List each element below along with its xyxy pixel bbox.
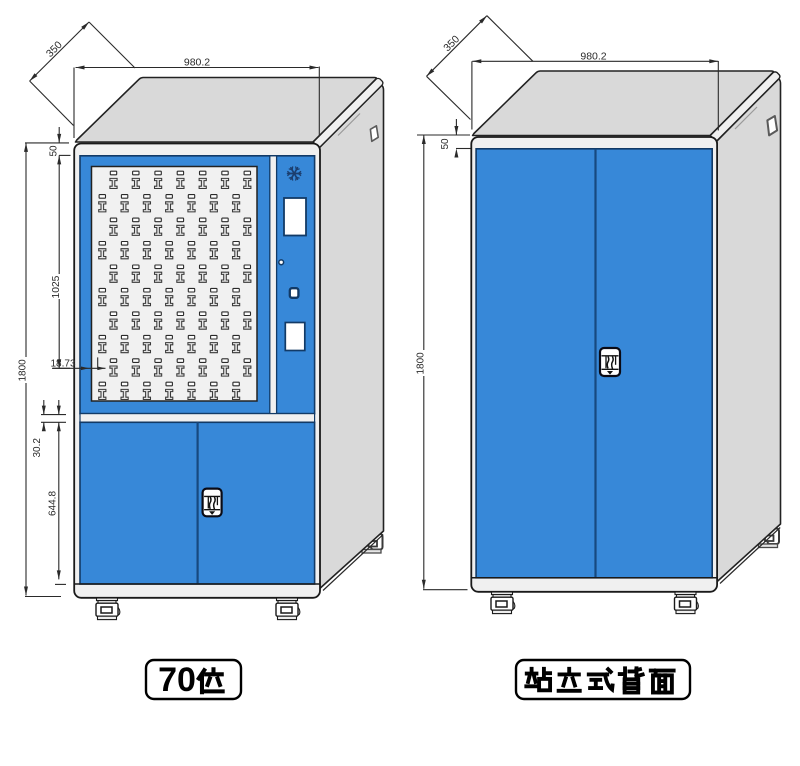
svg-text:30.2: 30.2 [32, 438, 43, 458]
svg-text:980.2: 980.2 [580, 51, 606, 63]
svg-text:1025: 1025 [51, 275, 62, 298]
svg-text:980.2: 980.2 [184, 57, 210, 69]
svg-text:1800: 1800 [18, 359, 29, 382]
svg-text:644.8: 644.8 [48, 491, 59, 516]
svg-text:50: 50 [49, 145, 60, 157]
svg-text:350: 350 [441, 33, 462, 54]
svg-text:350: 350 [44, 39, 65, 60]
svg-text:1800: 1800 [415, 352, 426, 375]
svg-text:50: 50 [440, 138, 451, 150]
svg-text:70: 70 [158, 661, 196, 699]
